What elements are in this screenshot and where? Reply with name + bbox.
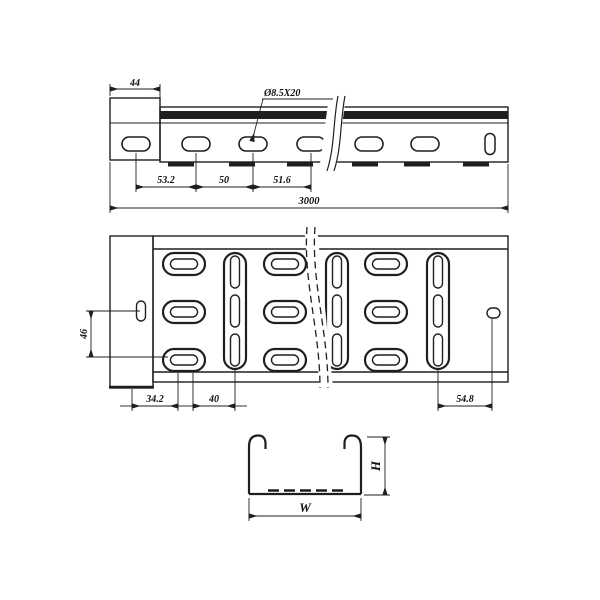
side-slot-hole (239, 137, 267, 151)
dim-offset-2: 40 (208, 394, 219, 405)
plan-slot-grid (163, 253, 449, 371)
plan-rung-slot (434, 256, 443, 288)
plan-view (109, 227, 508, 388)
plan-coupler-plate (110, 236, 153, 388)
plan-rung-slot (434, 295, 443, 327)
plan-slot-outer (264, 301, 306, 323)
section-right-wall (345, 436, 362, 495)
plan-rung-slot (333, 295, 342, 327)
cross-section-view (249, 436, 361, 495)
plan-slot-outer (264, 253, 306, 275)
dim-plate-width: 44 (129, 78, 140, 89)
plan-slot-inner (373, 259, 400, 269)
technical-drawing-canvas: 44 Ø8.5X20 53.2 50 51.6 3000 (0, 0, 600, 600)
side-bottom-notch (404, 163, 430, 167)
section-dimensions (249, 437, 390, 521)
dim-pitch-3: 51.6 (273, 175, 291, 186)
dim-row-spacing: 46 (79, 329, 90, 340)
plan-slot-outer (163, 253, 205, 275)
side-bottom-notch (229, 163, 255, 167)
plan-rung-slot (333, 256, 342, 288)
dim-end-offset: 54.8 (456, 394, 474, 405)
side-slot-hole (182, 137, 210, 151)
side-slot-hole (411, 137, 439, 151)
plan-rung-slot (231, 256, 240, 288)
plan-slot-inner (171, 355, 198, 365)
plan-slot-inner (272, 307, 299, 317)
plan-break-mask (304, 227, 333, 388)
side-slot-hole (122, 137, 150, 151)
plan-slot-inner (272, 355, 299, 365)
plan-slot-inner (272, 259, 299, 269)
plan-slot-inner (373, 355, 400, 365)
plan-end-slot (487, 308, 500, 318)
side-slot-hole (297, 137, 325, 151)
side-elevation-view (110, 96, 508, 171)
plan-rung-slot (231, 295, 240, 327)
plan-rung-outline (427, 253, 449, 369)
side-bottom-notch (168, 163, 194, 167)
plan-rung-slot (333, 334, 342, 366)
dim-offset-1: 34.2 (145, 394, 164, 405)
callout-leader (252, 99, 263, 141)
plan-slot-outer (264, 349, 306, 371)
side-end-slot (485, 134, 495, 155)
plan-slot-inner (373, 307, 400, 317)
side-bottom-notch (352, 163, 378, 167)
side-dimensions (110, 84, 508, 213)
side-bottom-notch (463, 163, 489, 167)
plan-rung-slot (434, 334, 443, 366)
plan-slot-inner (171, 259, 198, 269)
dim-pitch-1: 53.2 (157, 175, 175, 186)
cable-tray-drawing: 44 Ø8.5X20 53.2 50 51.6 3000 (0, 0, 600, 600)
dim-height-symbol: H (368, 460, 383, 472)
dim-slot-callout: Ø8.5X20 (263, 88, 300, 99)
dim-pitch-2: 50 (219, 175, 229, 186)
plan-slot-inner (171, 307, 198, 317)
plan-slot-outer (163, 301, 205, 323)
plan-slot-outer (365, 301, 407, 323)
dim-width-symbol: W (299, 500, 312, 515)
plan-rung-slot (231, 334, 240, 366)
plan-body (153, 236, 508, 382)
side-bottom-notch (287, 163, 313, 167)
section-left-wall (249, 436, 266, 495)
plan-rung-outline (224, 253, 246, 369)
plan-slot-outer (365, 349, 407, 371)
dim-overall-length: 3000 (298, 196, 321, 207)
plan-slot-outer (163, 349, 205, 371)
side-slot-hole (355, 137, 383, 151)
plan-slot-outer (365, 253, 407, 275)
